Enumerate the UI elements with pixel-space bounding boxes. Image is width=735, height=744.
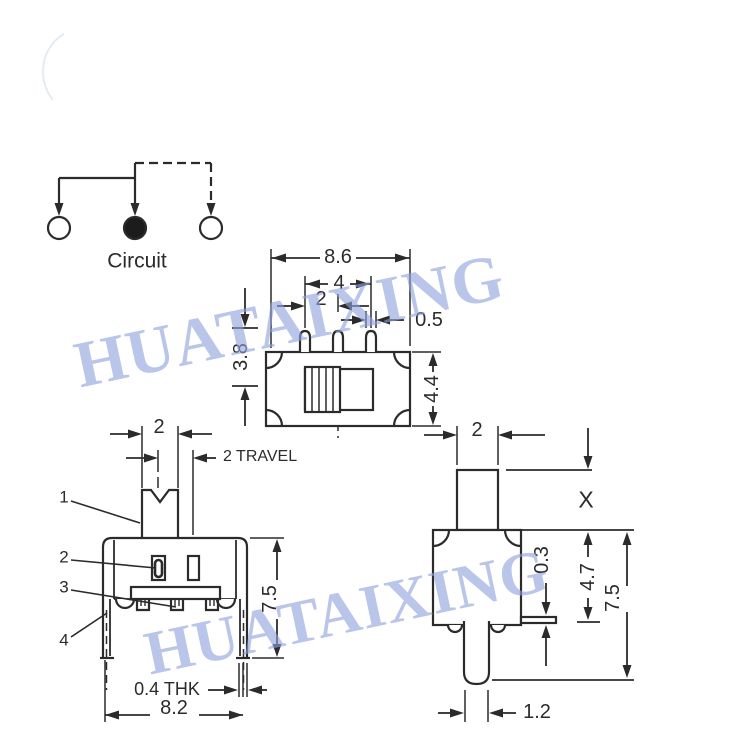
callout-2: 2 [57, 549, 70, 566]
slider-knob-top [305, 367, 340, 412]
pin-1 [300, 331, 310, 352]
dim-knob-width-front: 2 [151, 417, 166, 437]
terminal-b [171, 599, 183, 610]
circuit-schematic [48, 163, 222, 239]
dim-outer-pin-span: 4 [331, 273, 346, 293]
dim-terminal-width: 1.2 [521, 702, 553, 722]
dim-pin-width: 0.5 [413, 310, 445, 330]
boss-rear [491, 625, 505, 632]
side-knob [457, 470, 498, 530]
dim-height-front: 7.5 [260, 583, 280, 615]
dim-body-depth: 4.4 [422, 373, 442, 405]
callout-1: 1 [57, 489, 70, 506]
dim-overall-width-top: 8.6 [322, 247, 354, 267]
datasheet-drawing: Circuit 8.6 4 2 0.5 3.8 4.4 2 2 TRAVEL 1… [0, 0, 735, 744]
terminal-right [200, 217, 222, 239]
dim-travel: 2 TRAVEL [221, 449, 299, 465]
callout-4: 4 [57, 632, 70, 649]
dim-flange-thickness: 0.3 [532, 544, 552, 576]
side-terminal [464, 621, 489, 684]
dim-body-height-side: 4.7 [578, 561, 598, 593]
base-bar [131, 587, 220, 599]
faint-arc [43, 34, 64, 100]
front-knob [142, 490, 178, 538]
boss-right [217, 599, 235, 608]
terminal-left [48, 217, 70, 239]
circuit-label: Circuit [105, 251, 169, 272]
dim-pin-length: 3.8 [231, 341, 251, 373]
dim-knob-height: X [576, 489, 595, 512]
callout-3: 3 [57, 579, 70, 596]
side-view [424, 426, 634, 722]
boss-front [448, 625, 462, 632]
pin-2 [333, 331, 343, 352]
terminal-common [124, 217, 146, 239]
dim-pin-pitch: 2 [313, 289, 328, 309]
dim-bracket-thickness: 0.4 THK [132, 680, 202, 698]
front-view [71, 426, 284, 722]
pin-3 [366, 331, 376, 352]
rivet-right [188, 556, 199, 580]
linework [0, 0, 735, 744]
flange [521, 617, 556, 623]
side-body [433, 530, 521, 625]
dim-knob-width-side: 2 [469, 420, 484, 440]
dim-overall-height-side: 7.5 [603, 582, 623, 614]
dim-overall-width-front: 8.2 [158, 698, 190, 718]
